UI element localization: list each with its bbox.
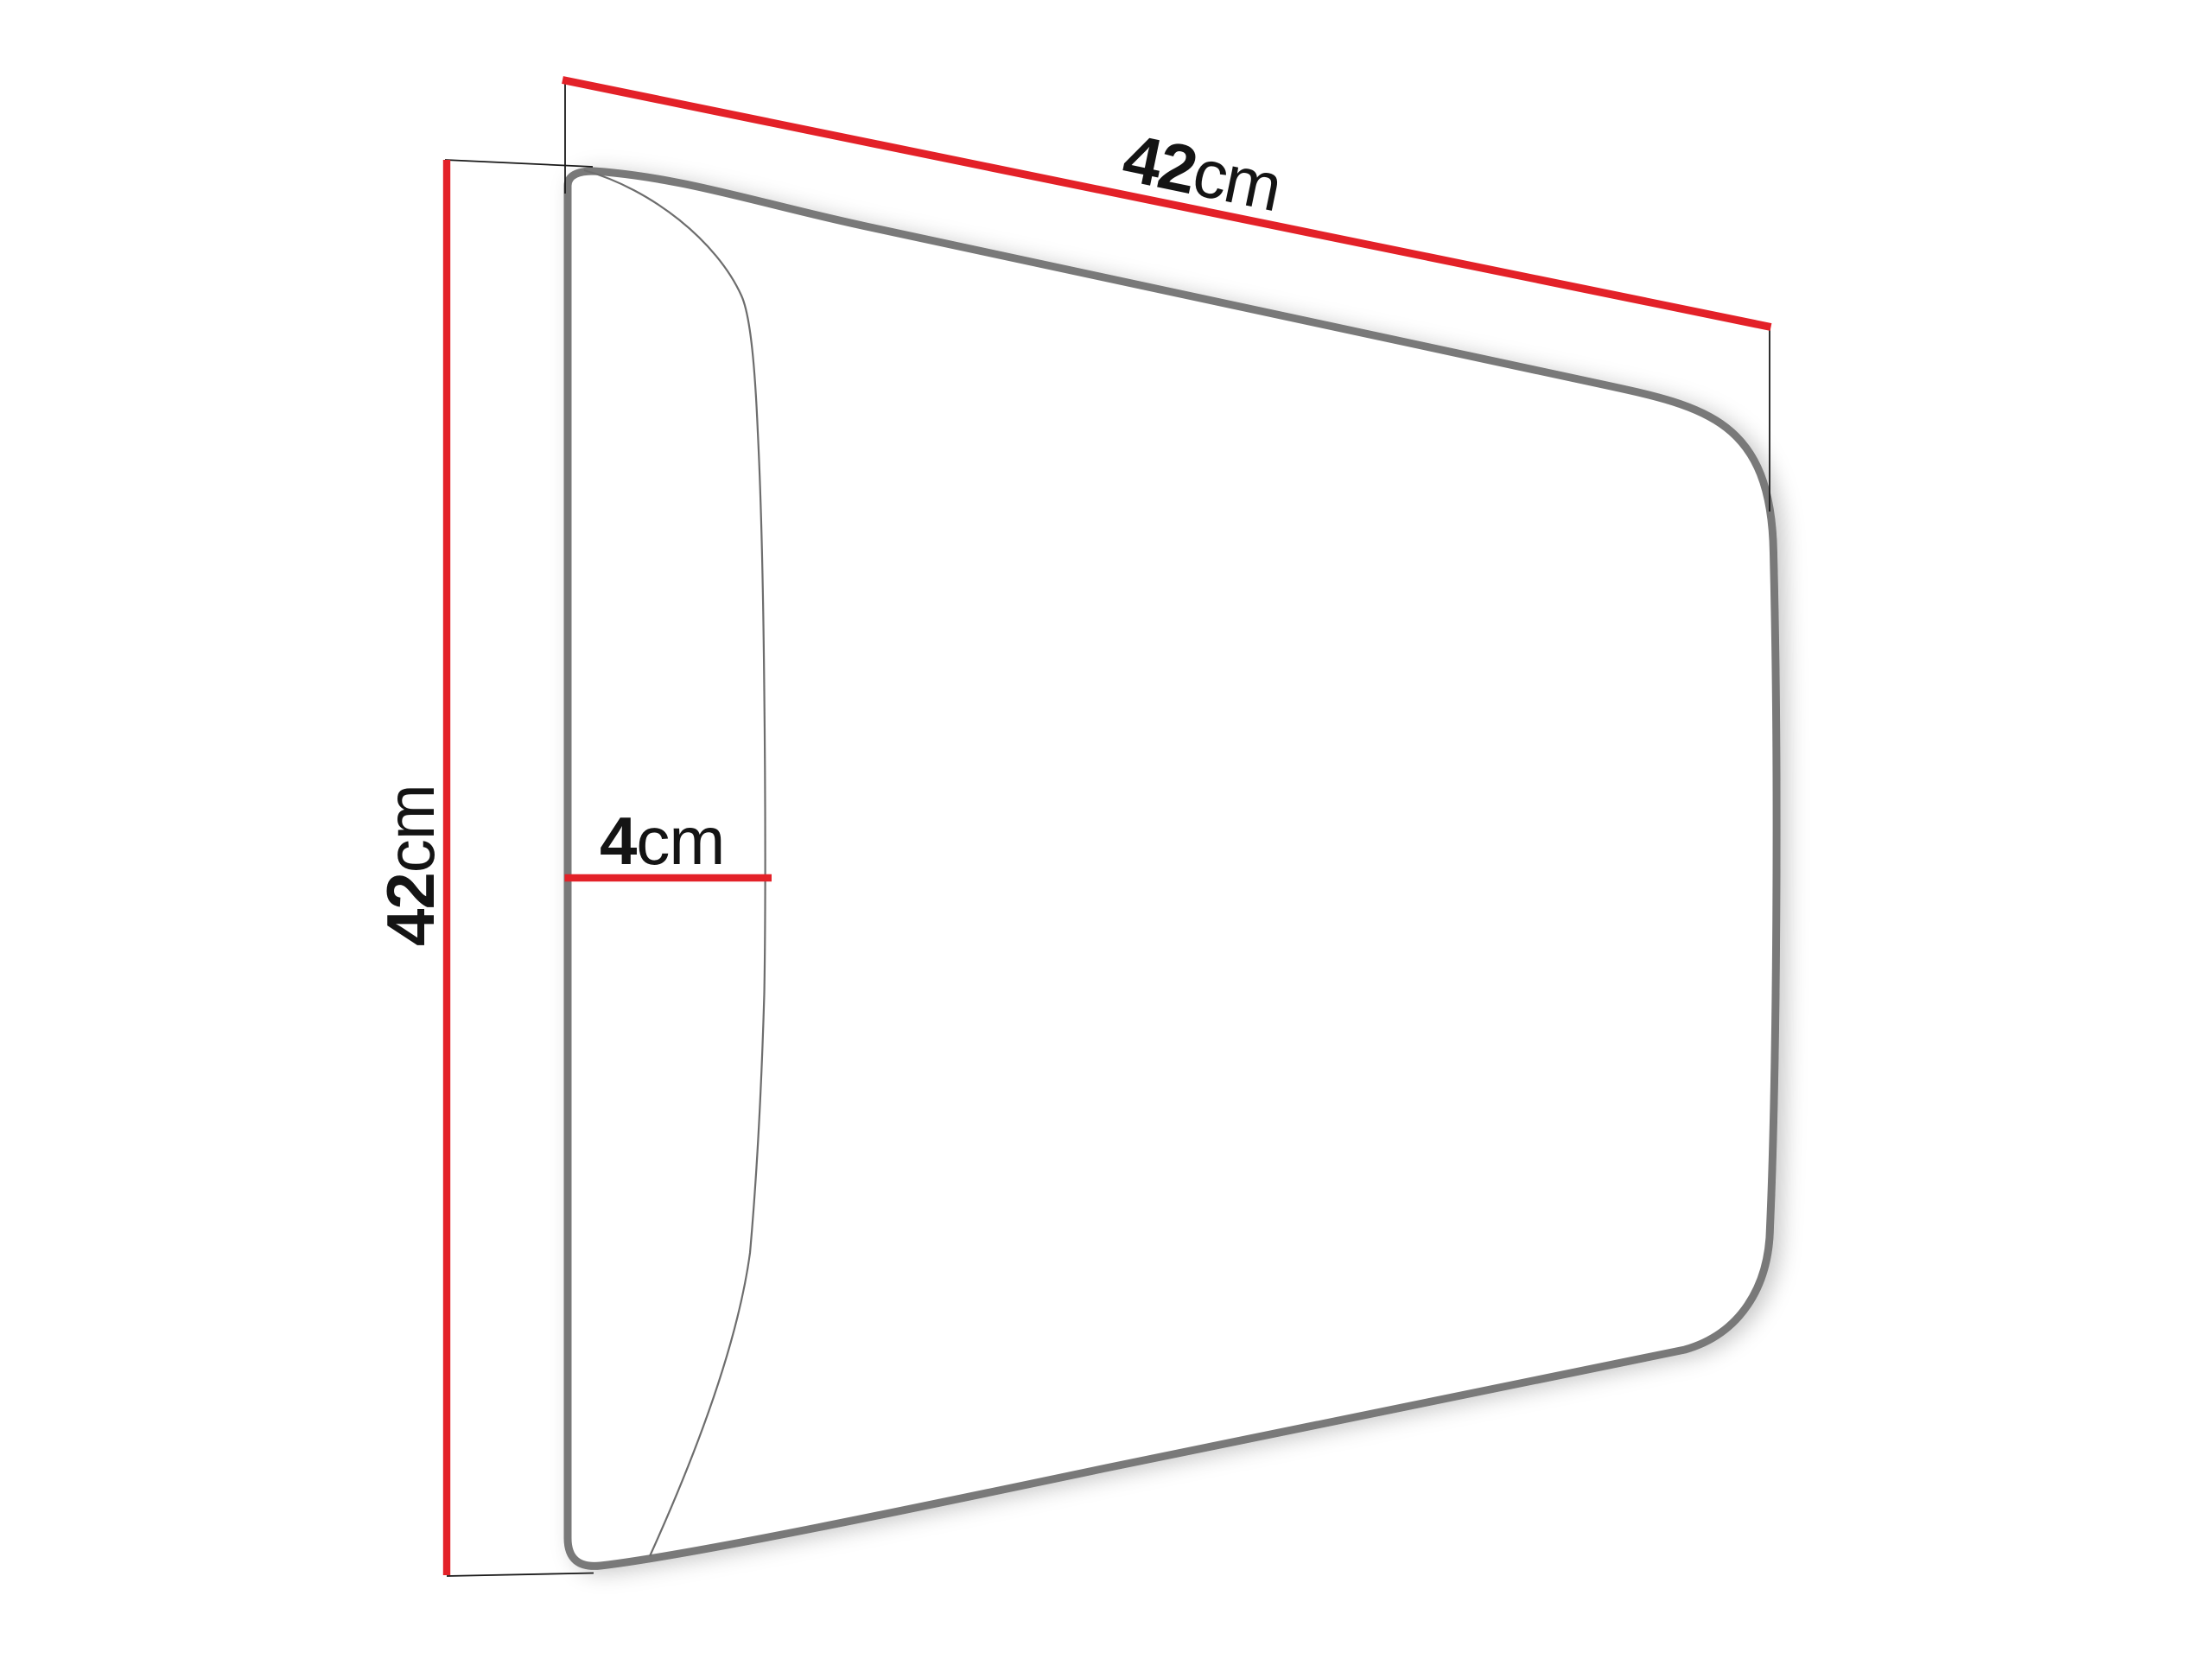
svg-text:42cm: 42cm [372,785,448,946]
svg-text:42cm: 42cm [1117,119,1287,226]
svg-text:4cm: 4cm [600,803,724,879]
